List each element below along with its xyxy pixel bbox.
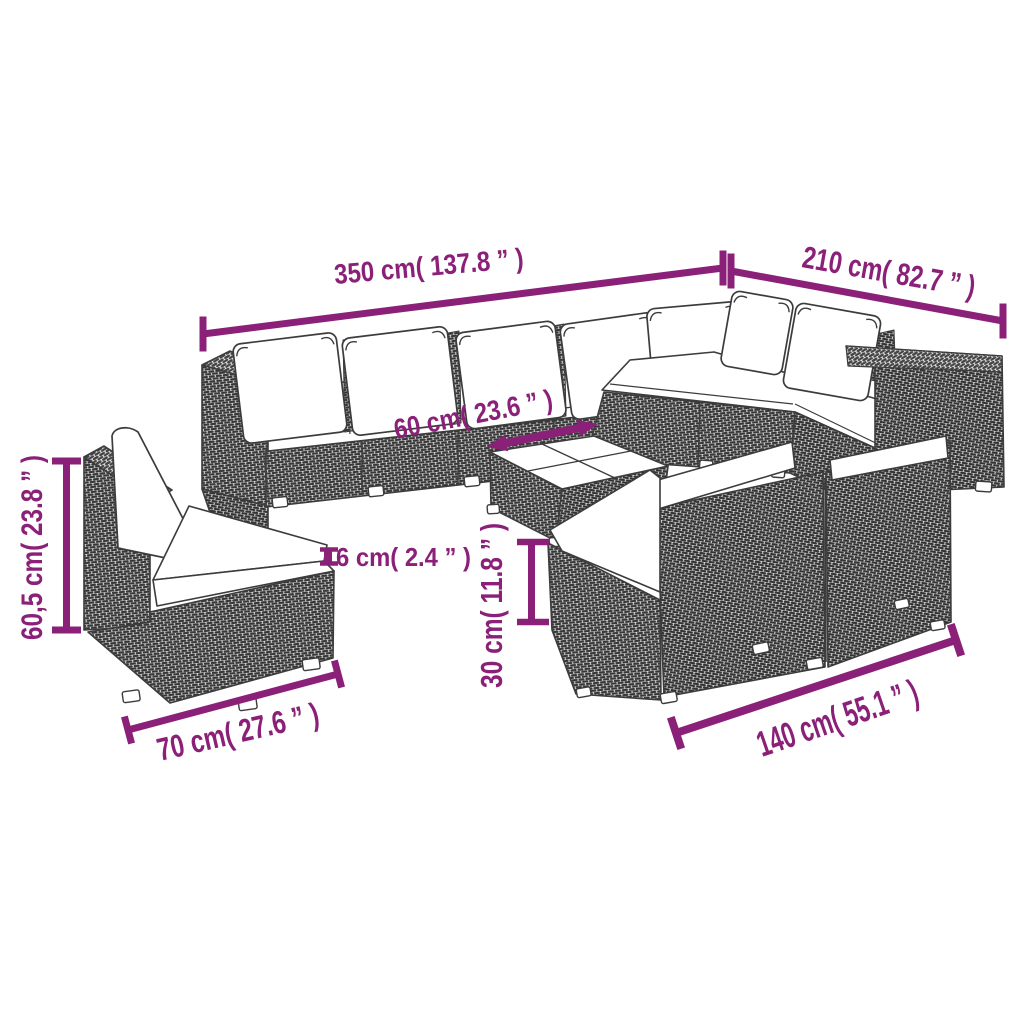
svg-text:60,5 cm( 23.8 ” ): 60,5 cm( 23.8 ” ) bbox=[16, 455, 49, 640]
svg-text:30 cm( 11.8 ” ): 30 cm( 11.8 ” ) bbox=[474, 523, 509, 688]
svg-text:6 cm( 2.4 ” ): 6 cm( 2.4 ” ) bbox=[336, 542, 471, 572]
